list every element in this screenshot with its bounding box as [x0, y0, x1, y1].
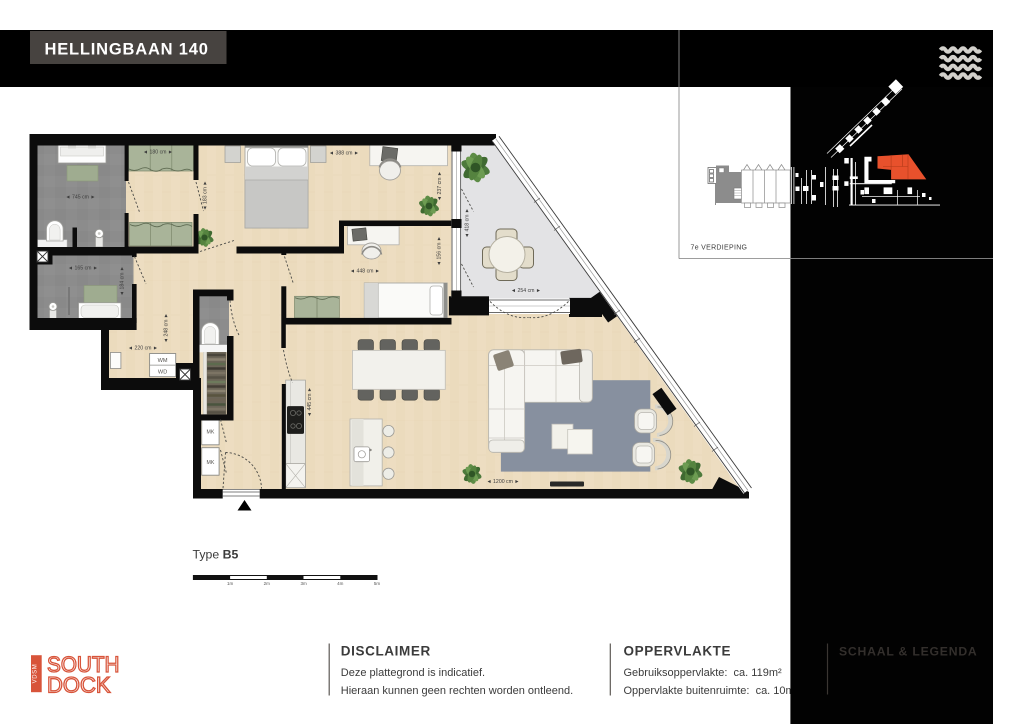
svg-text:◄ 180 cm ►: ◄ 180 cm ► [143, 150, 173, 156]
svg-text:◄ 165 cm ►: ◄ 165 cm ► [68, 266, 98, 272]
svg-text:3m: 3m [300, 581, 307, 586]
svg-text:◄ 248 cm ►: ◄ 248 cm ► [164, 313, 170, 343]
svg-text:WD: WD [158, 370, 167, 376]
svg-text:◄ 183 cm ►: ◄ 183 cm ► [203, 180, 209, 210]
svg-text:4m: 4m [337, 581, 344, 586]
svg-text:Deze plattegrond is indicatief: Deze plattegrond is indicatief. [341, 667, 485, 679]
svg-text:VDSM: VDSM [33, 664, 39, 684]
svg-text:WM: WM [158, 358, 168, 364]
svg-text:◄ 156 cm ►: ◄ 156 cm ► [437, 236, 443, 266]
svg-text:SCHAAL & LEGENDA: SCHAAL & LEGENDA [839, 645, 978, 659]
svg-text:HELLINGBAAN 140: HELLINGBAAN 140 [45, 41, 209, 59]
svg-text:Hieraan kunnen geen rechten wo: Hieraan kunnen geen rechten worden ontle… [341, 685, 573, 697]
svg-text:◄ 418 cm ►: ◄ 418 cm ► [465, 208, 471, 238]
svg-text:◄ 237 cm ►: ◄ 237 cm ► [437, 171, 443, 201]
svg-text:◄ 184 cm ►: ◄ 184 cm ► [120, 266, 126, 296]
svg-text:◄ 445 cm ►: ◄ 445 cm ► [307, 387, 313, 417]
svg-text:MK: MK [207, 460, 215, 466]
svg-text:DISCLAIMER: DISCLAIMER [341, 644, 431, 659]
svg-text:7e VERDIEPING: 7e VERDIEPING [691, 245, 748, 252]
svg-text:◄ 1200 cm ►: ◄ 1200 cm ► [486, 479, 519, 485]
svg-text:◄ 448 cm ►: ◄ 448 cm ► [350, 269, 380, 275]
svg-text:◄ 254 cm ►: ◄ 254 cm ► [511, 288, 541, 294]
svg-text:Type B5: Type B5 [193, 548, 239, 562]
svg-text:◄ 220 cm ►: ◄ 220 cm ► [128, 346, 158, 352]
svg-text:MK: MK [207, 430, 215, 436]
svg-text:DOCK: DOCK [47, 673, 111, 698]
svg-text:OPPERVLAKTE: OPPERVLAKTE [624, 644, 732, 659]
svg-text:◄ 388 cm ►: ◄ 388 cm ► [329, 151, 359, 157]
svg-text:1m: 1m [227, 581, 234, 586]
svg-text:◄ 745 cm ►: ◄ 745 cm ► [65, 195, 95, 201]
svg-text:2m: 2m [264, 581, 271, 586]
svg-text:Oppervlakte buitenruimte: ca.: Oppervlakte buitenruimte: ca. 10m² [624, 685, 799, 697]
svg-text:5m: 5m [374, 581, 381, 586]
svg-text:Gebruiksoppervlakte: ca. 119m: Gebruiksoppervlakte: ca. 119m² [624, 667, 782, 679]
